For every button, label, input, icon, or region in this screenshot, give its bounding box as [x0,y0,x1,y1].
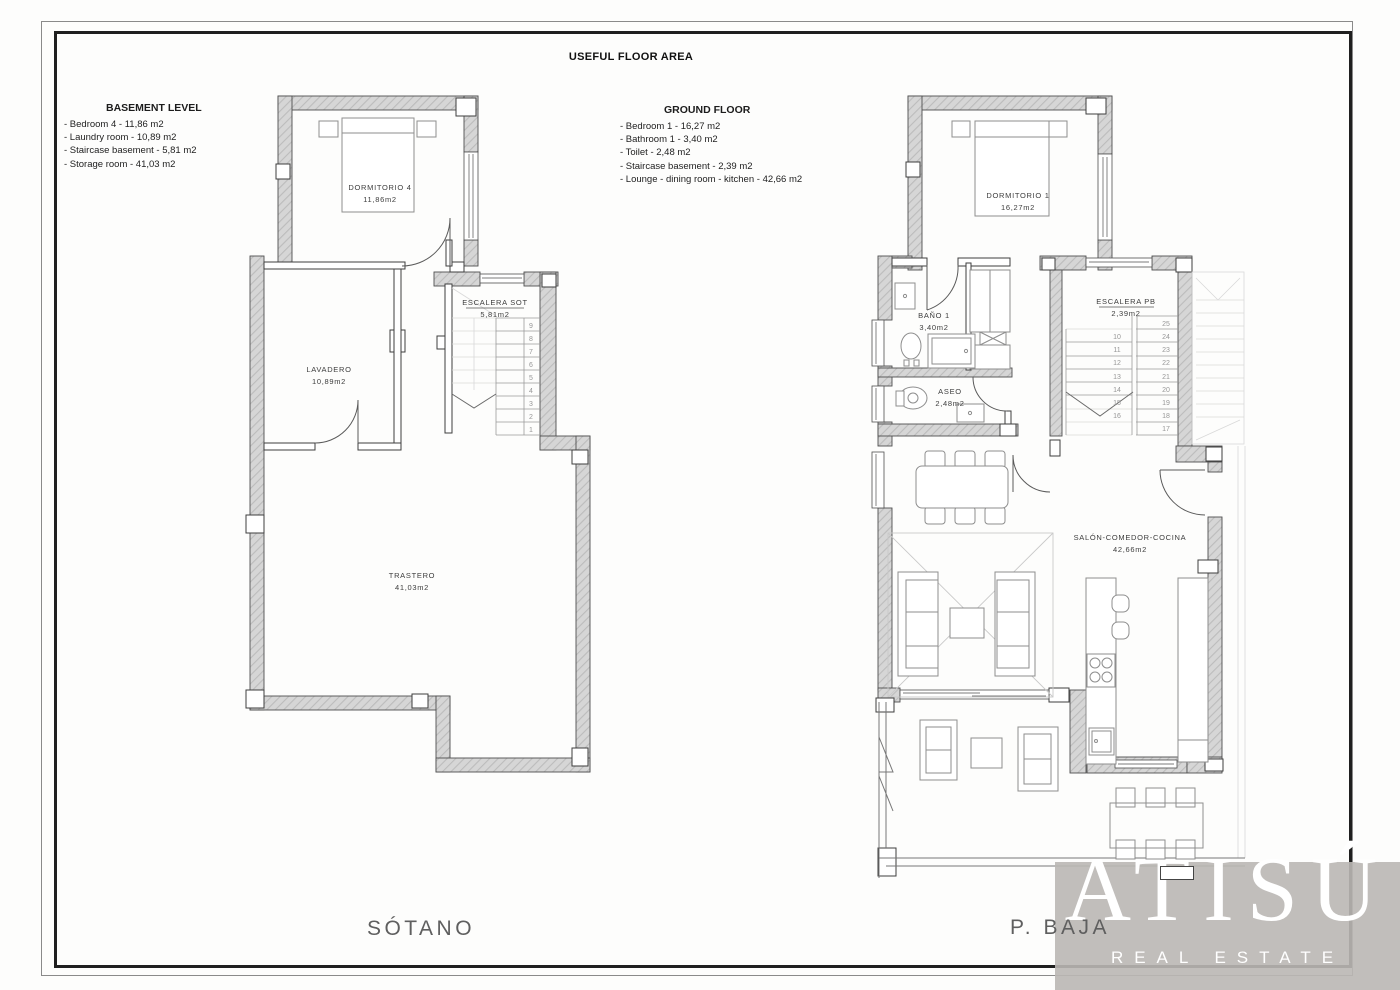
outdoor-chair [1176,788,1195,807]
svg-text:4: 4 [529,388,533,395]
outdoor-chair [1116,788,1135,807]
basement-room-labels: DORMITORIO 4 11,86m2 LAVADERO 10,89m2 ES… [306,183,527,592]
stair-direction-arrow [1066,392,1133,416]
svg-text:2: 2 [529,414,533,421]
chair [985,451,1005,468]
basement-partitions [264,240,464,450]
room-area-salon: 42,66m2 [1113,545,1147,554]
svg-text:6: 6 [529,362,533,369]
room-label-salon: SALÓN-COMEDOR-COCINA [1074,533,1187,542]
bed-dormitorio1 [952,121,1067,216]
svg-text:7: 7 [529,349,533,356]
svg-text:1: 1 [529,427,533,434]
room-label-dormitorio4: DORMITORIO 4 [348,183,411,192]
svg-text:23: 23 [1162,347,1170,354]
stool [1112,622,1129,639]
svg-text:9: 9 [529,323,533,330]
svg-text:11: 11 [1113,347,1120,354]
toilet [901,333,921,359]
room-label-escalera-pb: ESCALERA PB [1096,297,1155,306]
chair [925,451,945,468]
sink [895,283,915,309]
svg-text:21: 21 [1162,374,1170,381]
basement-doors [315,218,450,443]
ground-stairs: 10 11 12 13 14 15 16 25 24 23 22 21 20 1… [1066,316,1178,435]
room-label-trastero: TRASTERO [389,571,435,580]
floor-plan-sheet: USEFUL FLOOR AREA BASEMENT LEVEL - Bedro… [0,0,1400,990]
basement-walls [250,96,590,772]
sofa [898,572,938,676]
basement-plan: 9 8 7 6 5 4 3 2 1 DORMITORIO 4 11,86m2 L… [246,96,590,772]
svg-text:22: 22 [1162,360,1170,367]
room-area-aseo: 2,48m2 [935,399,964,408]
basement-stair-numbers: 9 8 7 6 5 4 3 2 1 [529,323,533,434]
dining-set [916,451,1008,524]
chair [925,507,945,524]
chair [985,507,1005,524]
room-label-escalera-sot: ESCALERA SOT [462,298,528,307]
ground-plan: 10 11 12 13 14 15 16 25 24 23 22 21 20 1… [872,96,1245,878]
svg-text:3: 3 [529,401,533,408]
ground-stair-numbers-right: 25 24 23 22 21 20 19 18 17 [1162,321,1170,433]
kitchen [1086,578,1208,764]
nightstand [417,121,436,137]
stair-direction-arrow [452,394,496,408]
room-area-lavadero: 10,89m2 [312,377,346,386]
basement-pillars [246,98,588,766]
svg-text:16: 16 [1113,413,1121,420]
room-area-bano: 3,40m2 [919,323,948,332]
svg-text:24: 24 [1162,334,1170,341]
svg-text:5: 5 [529,375,533,382]
svg-text:10: 10 [1113,334,1121,341]
chair [955,507,975,524]
dining-table [916,466,1008,508]
svg-text:25: 25 [1162,321,1170,328]
room-label-dormitorio1: DORMITORIO 1 [986,191,1049,200]
room-area-dormitorio4: 11,86m2 [363,195,397,204]
brand-tagline: REAL ESTATE [1055,948,1400,968]
svg-text:13: 13 [1113,374,1121,381]
svg-text:15: 15 [1113,400,1121,407]
svg-text:20: 20 [1162,387,1170,394]
svg-text:8: 8 [529,336,533,343]
sliding-door [900,690,1049,699]
wardrobe [970,270,1010,369]
stool [1112,595,1129,612]
kitchen-counter [1178,578,1208,762]
nightstand [1049,121,1067,137]
lounge-set [888,533,1053,697]
room-area-trastero: 41,03m2 [395,583,429,592]
nightstand [319,121,338,137]
room-label-lavadero: LAVADERO [306,365,351,374]
room-area-escalera-sot: 5,81m2 [480,310,509,319]
svg-text:17: 17 [1162,426,1170,433]
nightstand [952,121,970,137]
svg-text:12: 12 [1113,360,1121,367]
room-area-escalera-pb: 2,39m2 [1111,309,1140,318]
terrace-planter [1160,866,1194,880]
room-area-dormitorio1: 16,27m2 [1001,203,1035,212]
room-label-bano: BAÑO 1 [918,311,950,320]
svg-text:18: 18 [1162,413,1170,420]
outdoor-chair [1146,788,1165,807]
room-label-aseo: ASEO [938,387,962,396]
floor-label-sotano: SÓTANO [336,917,506,941]
ground-stair-numbers-left: 10 11 12 13 14 15 16 [1113,334,1121,420]
outdoor-coffee-table [971,738,1002,768]
svg-text:14: 14 [1113,387,1121,394]
coffee-table [950,608,984,638]
svg-text:19: 19 [1162,400,1170,407]
chair [955,451,975,468]
floor-label-pbaja: P. BAJA [990,916,1130,940]
entry-door [1160,470,1205,515]
